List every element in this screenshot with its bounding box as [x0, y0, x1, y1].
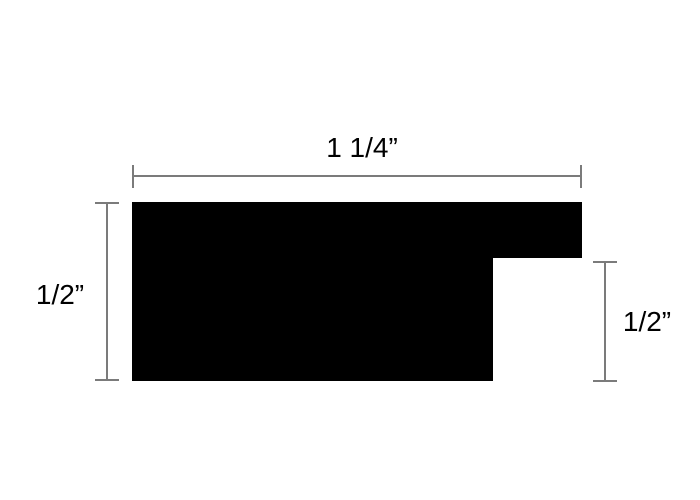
right-dimension-label: 1/2” [623, 306, 671, 337]
right-dimension [593, 262, 617, 381]
top-dimension [132, 165, 582, 188]
profile-diagram: 1 1/4” 1/2” 1/2” [0, 0, 700, 500]
top-dimension-label: 1 1/4” [326, 132, 398, 163]
left-dimension-label: 1/2” [36, 279, 84, 310]
diagram-canvas: 1 1/4” 1/2” 1/2” [0, 0, 700, 500]
left-dimension [95, 203, 119, 380]
profile-shape [132, 202, 582, 381]
